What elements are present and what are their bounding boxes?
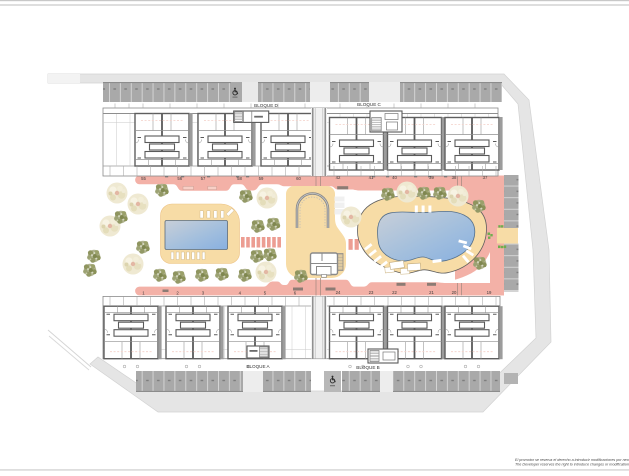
svg-text:The Developer reserves the rig: The Developer reserves the right to intr… <box>515 462 629 466</box>
svg-text:BLOQUE A: BLOQUE A <box>246 364 270 369</box>
svg-text:42: 42 <box>336 175 341 180</box>
svg-text:23: 23 <box>369 290 374 295</box>
svg-text:40: 40 <box>392 175 397 180</box>
svg-text:39: 39 <box>429 175 434 180</box>
svg-text:56: 56 <box>177 176 182 181</box>
svg-text:38: 38 <box>452 175 457 180</box>
svg-text:BLOQUE B: BLOQUE B <box>356 365 380 370</box>
svg-text:21: 21 <box>429 290 434 295</box>
svg-text:60: 60 <box>296 176 301 181</box>
svg-text:El promotor se reserva el dere: El promotor se reserva el derecho a intr… <box>515 458 629 462</box>
svg-text:20: 20 <box>452 290 457 295</box>
svg-text:BLOQUE C: BLOQUE C <box>357 102 381 107</box>
svg-text:59: 59 <box>259 176 264 181</box>
svg-text:57: 57 <box>201 176 206 181</box>
svg-text:19: 19 <box>487 290 492 295</box>
svg-text:58: 58 <box>237 176 242 181</box>
svg-text:22: 22 <box>392 290 397 295</box>
svg-text:BLOQUE D: BLOQUE D <box>254 103 278 108</box>
svg-text:37: 37 <box>483 175 488 180</box>
svg-text:55: 55 <box>141 176 146 181</box>
svg-text:24: 24 <box>336 290 341 295</box>
svg-text:41: 41 <box>369 175 374 180</box>
